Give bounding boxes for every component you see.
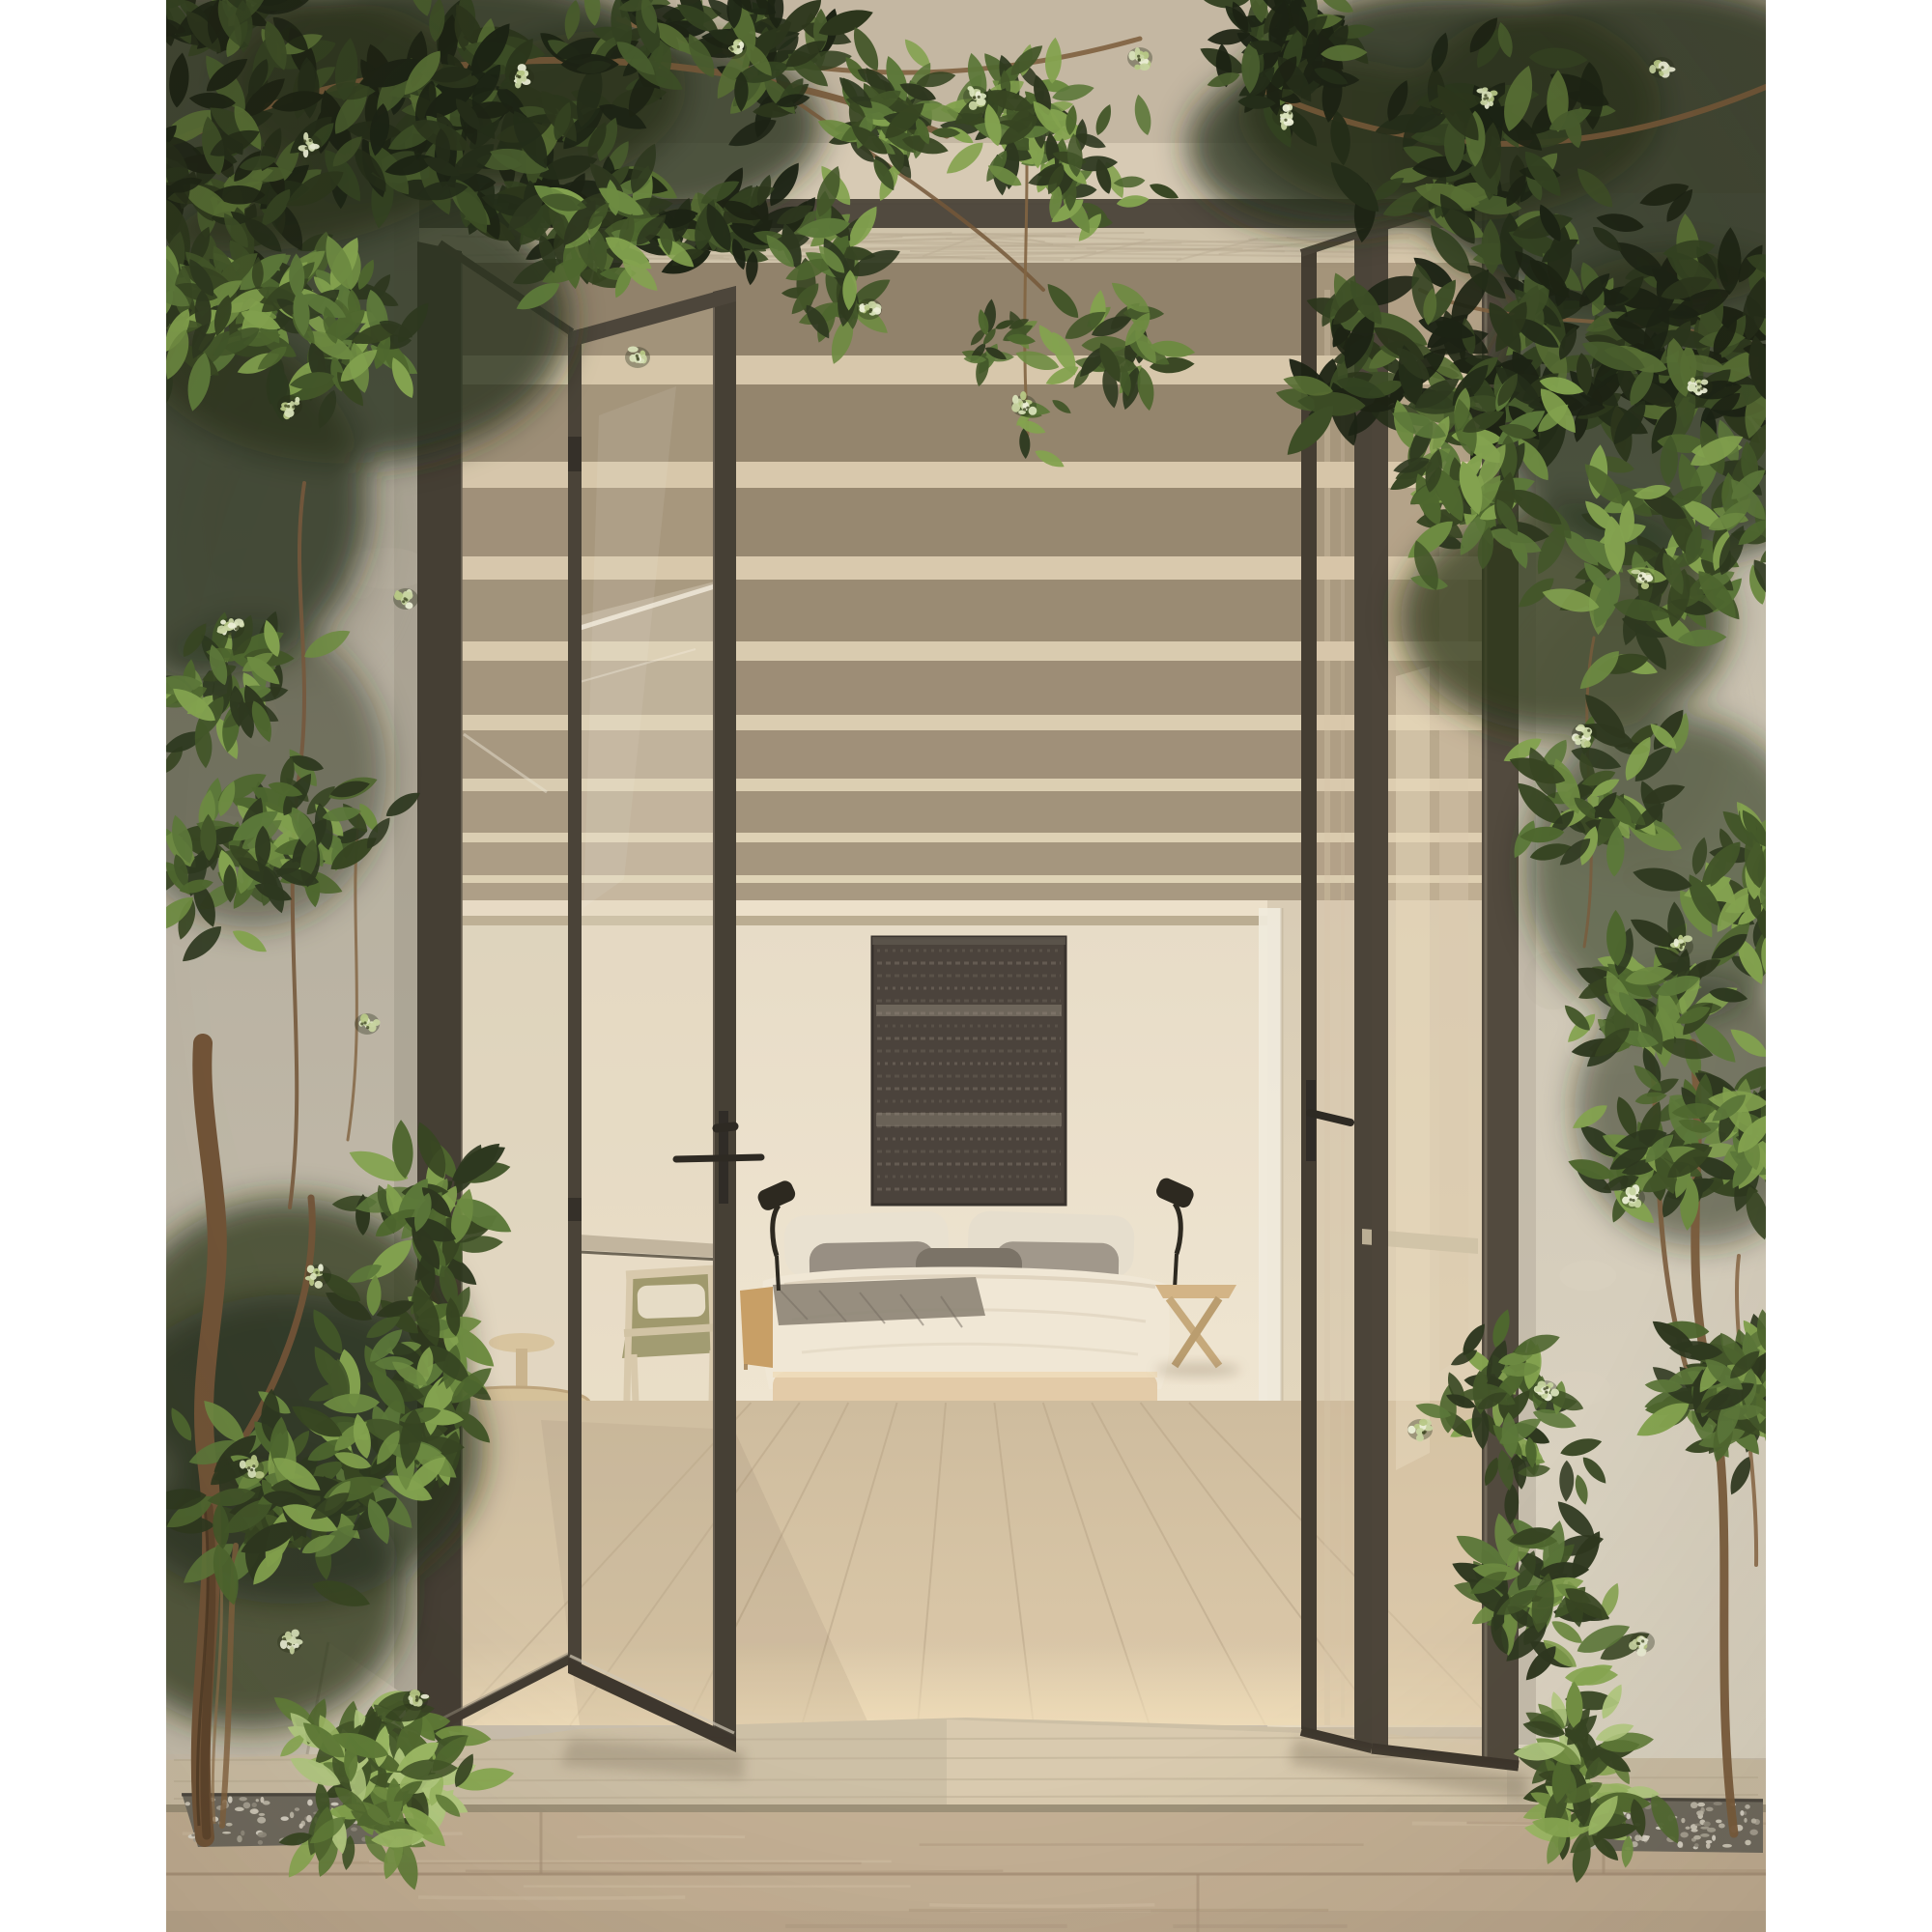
screenshot-stage — [0, 0, 1932, 1932]
scene-illustration — [166, 0, 1766, 1932]
photo-grading — [166, 0, 1766, 1932]
photo-frame — [166, 0, 1766, 1932]
